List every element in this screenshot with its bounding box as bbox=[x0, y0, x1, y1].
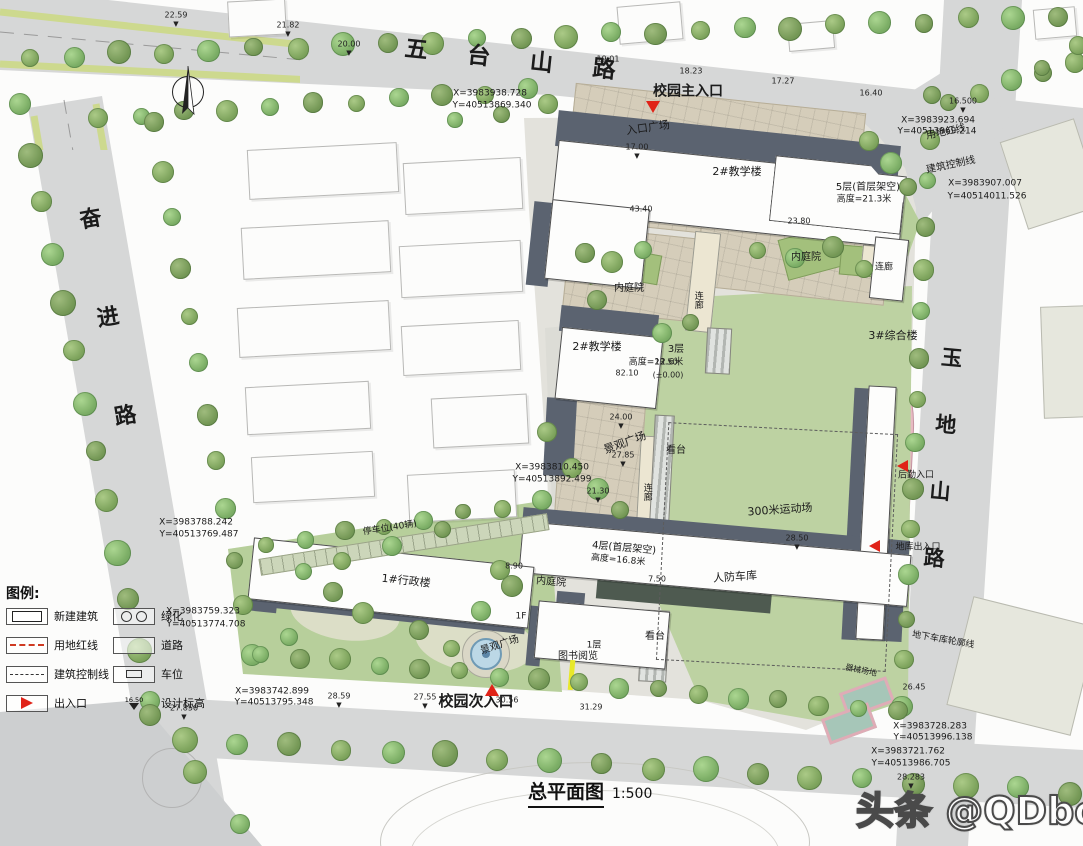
road-icon bbox=[113, 637, 155, 654]
red-line-icon bbox=[6, 637, 48, 654]
parking-icon bbox=[113, 666, 155, 683]
legend-item-label: 新建建筑 bbox=[54, 608, 98, 624]
watermark: 头条 @QDboy bbox=[856, 780, 1083, 835]
legend-item-label: 建筑控制线 bbox=[54, 666, 109, 682]
legend-item-road: 道路 bbox=[113, 636, 205, 654]
greenery-icon bbox=[113, 608, 155, 625]
elevation-icon: 16.50 bbox=[113, 695, 155, 712]
legend-item-control-line: 建筑控制线 bbox=[6, 665, 109, 683]
legend: 图例: 新建建筑用地红线建筑控制线出入口 绿化道路车位16.50设计标高 bbox=[6, 583, 232, 712]
legend-item-label: 用地红线 bbox=[54, 637, 98, 653]
legend-item-label: 道路 bbox=[161, 637, 183, 653]
gates-layer bbox=[0, 0, 1083, 846]
legend-item-greenery: 绿化 bbox=[113, 607, 205, 625]
legend-item-label: 出入口 bbox=[54, 695, 87, 711]
legend-item-label: 设计标高 bbox=[161, 695, 205, 711]
gate-icon bbox=[6, 695, 48, 712]
plan-title: 总平面图 1:500 bbox=[528, 777, 652, 808]
legend-item-gate: 出入口 bbox=[6, 694, 109, 712]
legend-item-parking: 车位 bbox=[113, 665, 205, 683]
legend-item-label: 车位 bbox=[161, 666, 183, 682]
secondary-entrance-icon bbox=[485, 684, 499, 696]
new-building-icon bbox=[6, 608, 48, 625]
plan-title-text: 总平面图 bbox=[528, 777, 604, 808]
control-line-icon bbox=[6, 666, 48, 683]
plan-title-scale: 1:500 bbox=[612, 786, 652, 802]
legend-item-label: 绿化 bbox=[161, 608, 183, 624]
legend-item-elevation: 16.50设计标高 bbox=[113, 694, 205, 712]
legend-item-red-line: 用地红线 bbox=[6, 636, 109, 654]
logistics-entrance-icon bbox=[897, 460, 908, 472]
garage-entrance-icon bbox=[869, 540, 880, 552]
legend-title: 图例: bbox=[6, 583, 232, 603]
site-plan-canvas: 五台山路奋进路玉地山路校园主入口入口广场2#教学楼5层(首层架空)高度=21.3… bbox=[0, 0, 1083, 846]
legend-item-new-building: 新建建筑 bbox=[6, 607, 109, 625]
main-entrance-icon bbox=[646, 101, 660, 113]
